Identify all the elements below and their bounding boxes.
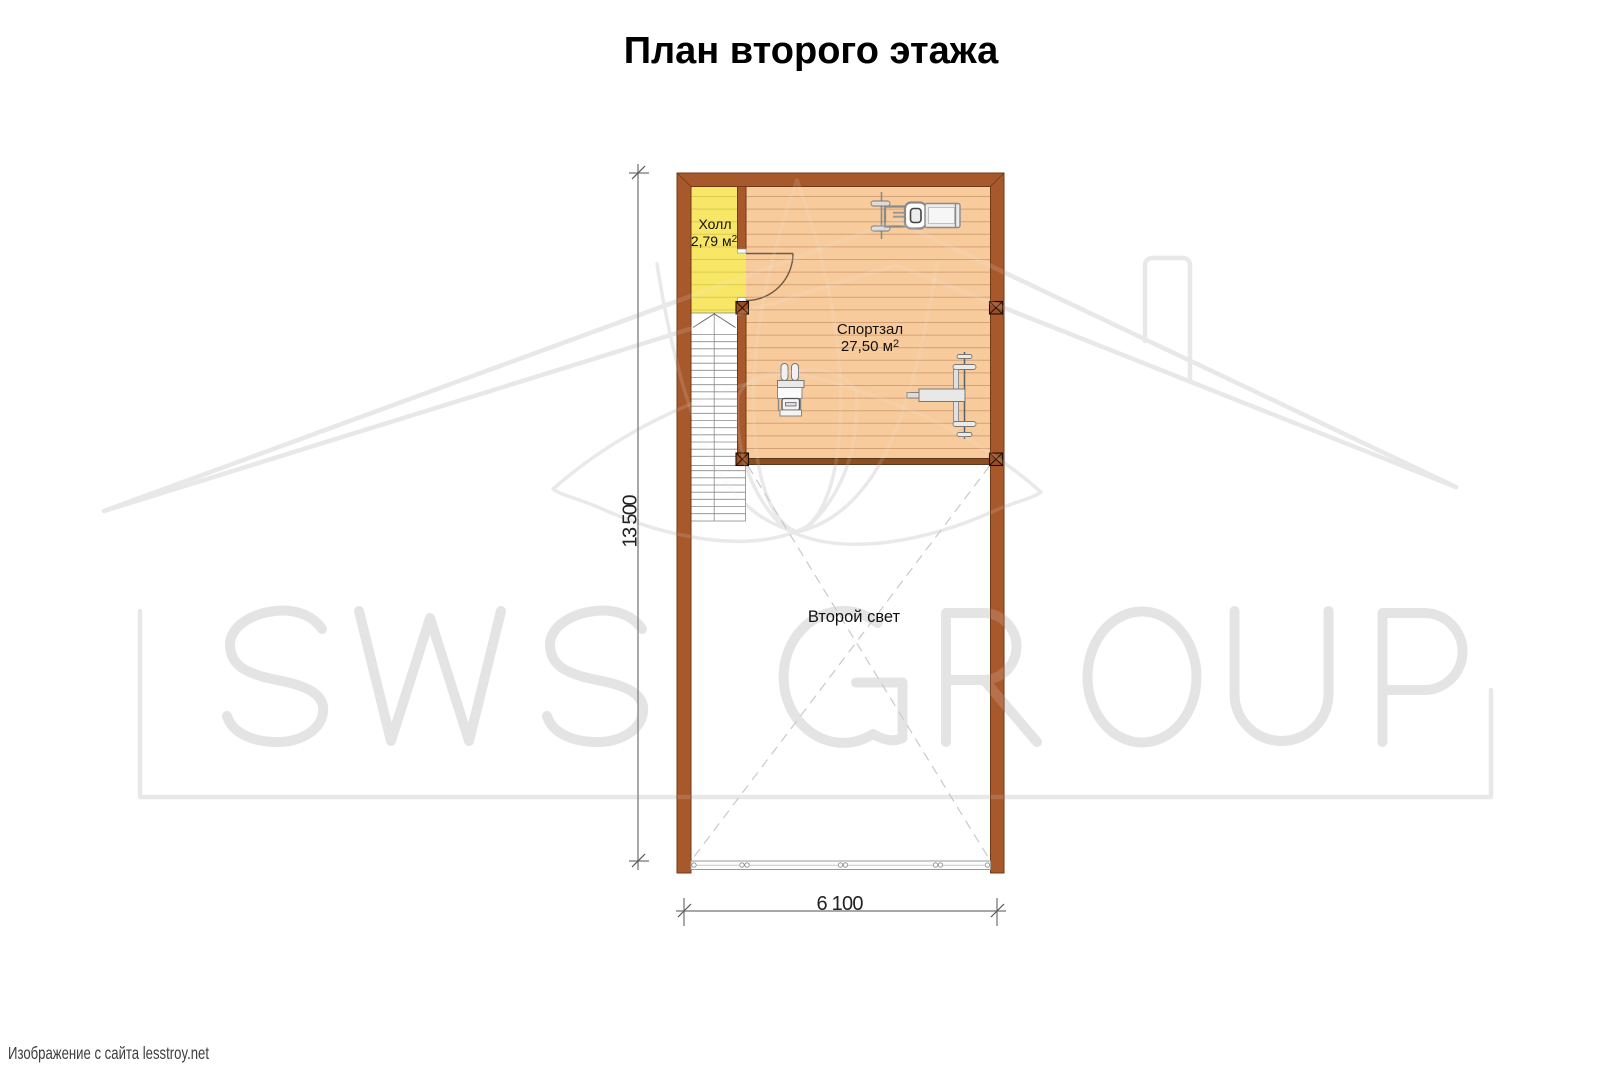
svg-text:Изображение с сайта lesstroy.n: Изображение с сайта lesstroy.net xyxy=(8,1043,209,1063)
svg-text:Спортзал: Спортзал xyxy=(837,321,903,338)
svg-text:План второго этажа: План второго этажа xyxy=(624,30,999,72)
svg-text:6 100: 6 100 xyxy=(817,893,864,915)
svg-text:27,50 м2: 27,50 м2 xyxy=(841,338,899,355)
svg-text:2,79 м2: 2,79 м2 xyxy=(691,233,738,249)
svg-text:Холл: Холл xyxy=(699,216,732,232)
svg-text:13 500: 13 500 xyxy=(620,495,642,548)
svg-text:Второй свет: Второй свет xyxy=(808,608,901,626)
